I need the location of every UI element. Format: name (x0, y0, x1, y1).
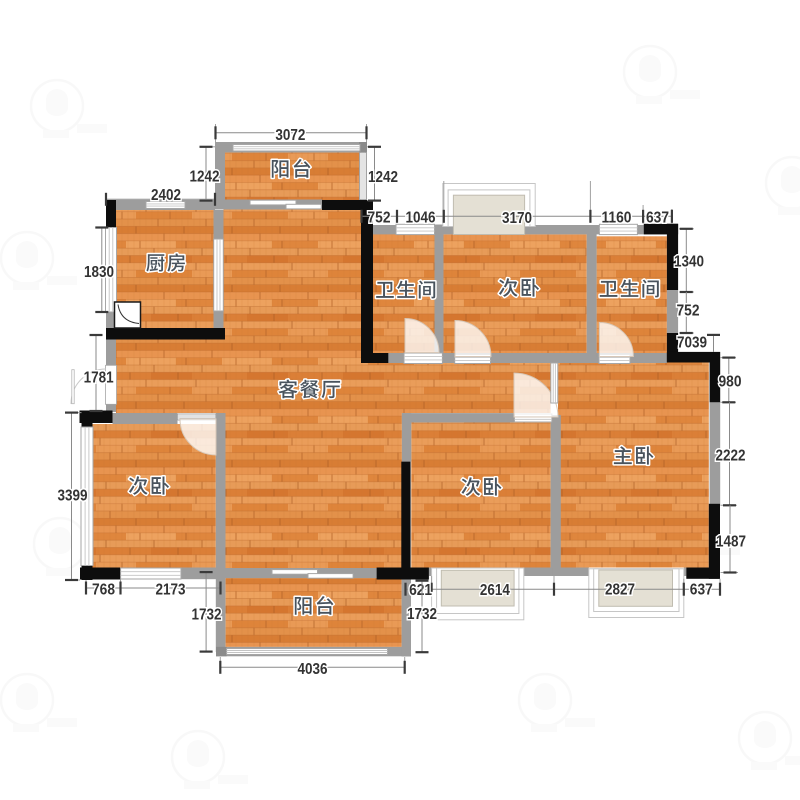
svg-text:2827: 2827 (605, 582, 635, 599)
svg-text:1340: 1340 (674, 254, 704, 271)
svg-text:1242: 1242 (368, 169, 398, 186)
svg-text:2222: 2222 (716, 448, 746, 465)
svg-text:752: 752 (368, 210, 391, 227)
svg-text:752: 752 (677, 303, 700, 320)
svg-text:768: 768 (92, 582, 115, 599)
svg-text:1160: 1160 (602, 209, 632, 226)
svg-text:1046: 1046 (406, 210, 436, 227)
svg-text:3072: 3072 (275, 127, 305, 144)
svg-text:980: 980 (719, 374, 742, 391)
svg-text:1732: 1732 (407, 606, 437, 623)
svg-text:2614: 2614 (480, 582, 510, 599)
svg-text:7039: 7039 (677, 335, 707, 352)
svg-text:4036: 4036 (298, 661, 328, 678)
svg-text:1242: 1242 (190, 169, 220, 186)
svg-text:1487: 1487 (716, 534, 746, 551)
svg-text:1781: 1781 (84, 370, 114, 387)
svg-text:637: 637 (646, 209, 669, 226)
svg-text:3399: 3399 (58, 488, 88, 505)
svg-text:2173: 2173 (156, 582, 186, 599)
svg-text:3170: 3170 (502, 210, 532, 227)
svg-text:637: 637 (690, 582, 713, 599)
svg-text:1732: 1732 (192, 607, 222, 624)
svg-text:1830: 1830 (84, 264, 114, 281)
svg-text:2402: 2402 (151, 187, 181, 204)
svg-text:621: 621 (409, 582, 432, 599)
